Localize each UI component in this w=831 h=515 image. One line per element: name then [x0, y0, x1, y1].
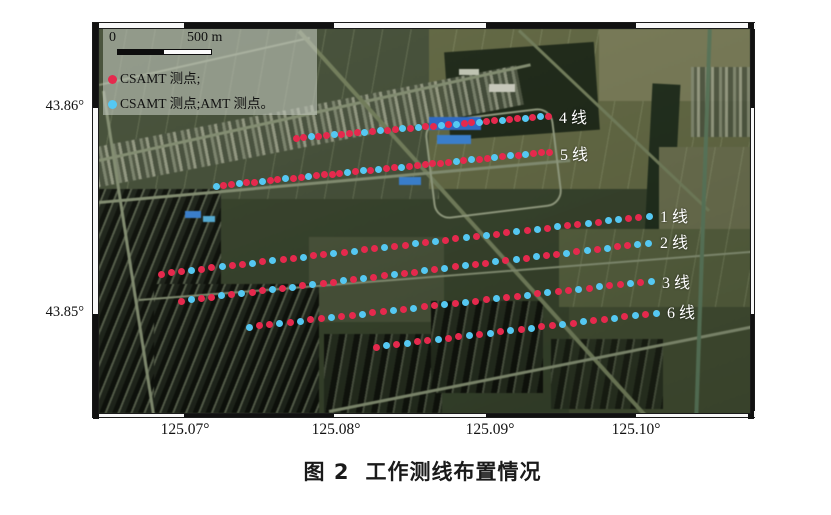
csamt-amt-point — [522, 115, 529, 122]
scalebar-zero: 0 — [109, 30, 116, 46]
csamt-amt-point — [328, 314, 335, 321]
x-axis-tick-label: 125.09° — [455, 421, 525, 439]
csamt-amt-point — [219, 263, 226, 270]
csamt-amt-point — [300, 254, 307, 261]
csamt-amt-point — [537, 113, 544, 120]
csamt-point — [546, 149, 553, 156]
csamt-point — [287, 319, 294, 326]
legend-item-csamt: CSAMT 测点; — [108, 67, 200, 81]
csamt-point — [570, 320, 577, 327]
csamt-amt-point — [653, 310, 660, 317]
csamt-amt-point — [412, 240, 419, 247]
csamt-amt-point — [404, 340, 411, 347]
csamt-amt-point — [462, 299, 469, 306]
csamt-point — [445, 335, 452, 342]
csamt-point — [300, 134, 307, 141]
csamt-point — [543, 252, 550, 259]
csamt-point — [198, 295, 205, 302]
csamt-point — [407, 125, 414, 132]
csamt-amt-point — [331, 131, 338, 138]
csamt-point — [346, 130, 353, 137]
csamt-point — [402, 242, 409, 249]
csamt-point — [406, 163, 413, 170]
csamt-point — [461, 120, 468, 127]
csamt-amt-point — [246, 324, 253, 331]
csamt-point — [476, 156, 483, 163]
csamt-amt-point — [453, 121, 460, 128]
csamt-point — [391, 164, 398, 171]
csamt-point — [279, 285, 286, 292]
survey-line-label: 4 线 — [559, 104, 587, 128]
csamt-point — [341, 249, 348, 256]
csamt-amt-point — [584, 247, 591, 254]
csamt-amt-point — [360, 275, 367, 282]
csamt-point — [354, 129, 361, 136]
csamt-amt-point — [269, 286, 276, 293]
csamt-amt-point — [432, 238, 439, 245]
csamt-amt-point — [381, 244, 388, 251]
csamt-point — [158, 271, 165, 278]
csamt-amt-point — [611, 315, 618, 322]
csamt-amt-point — [499, 117, 506, 124]
csamt-point — [472, 298, 479, 305]
csamt-point — [472, 261, 479, 268]
csamt-point — [514, 293, 521, 300]
csamt-amt-point — [604, 245, 611, 252]
csamt-point — [442, 237, 449, 244]
csamt-amt-point — [534, 226, 541, 233]
csamt-point — [338, 131, 345, 138]
csamt-amt-point — [463, 234, 470, 241]
csamt-point — [329, 171, 336, 178]
survey-line-label: 5 线 — [560, 141, 588, 165]
csamt-amt-point — [188, 296, 195, 303]
csamt-point — [220, 182, 227, 189]
survey-line-label: 2 线 — [660, 229, 688, 253]
map-frame: 4 线5 线1 线2 线3 线6 线 0 500 m CSAMT 测点; CSA… — [92, 22, 755, 418]
csamt-amt-point — [188, 267, 195, 274]
csamt-point — [595, 219, 602, 226]
csamt-amt-point — [359, 311, 366, 318]
csamt-amt-point — [391, 271, 398, 278]
csamt-point — [267, 177, 274, 184]
legend-item-csamt-amt: CSAMT 测点;AMT 测点。 — [108, 92, 274, 106]
csamt-amt-point — [559, 321, 566, 328]
csamt-point — [544, 225, 551, 232]
csamt-point-icon — [108, 75, 117, 84]
csamt-point — [239, 261, 246, 268]
csamt-point — [518, 326, 525, 333]
scalebar-white-segment — [163, 49, 212, 55]
csamt-amt-point — [297, 318, 304, 325]
csamt-point — [369, 128, 376, 135]
csamt-amt-point — [632, 312, 639, 319]
csamt-point — [208, 294, 215, 301]
csamt-point — [445, 159, 452, 166]
csamt-point — [392, 126, 399, 133]
csamt-point — [473, 233, 480, 240]
caption-title: 工作测线布置情况 — [365, 460, 541, 484]
csamt-point — [538, 149, 545, 156]
csamt-amt-point — [453, 158, 460, 165]
csamt-point — [400, 306, 407, 313]
csamt-point — [601, 316, 608, 323]
csamt-amt-point — [476, 119, 483, 126]
csamt-amt-point — [249, 260, 256, 267]
csamt-point — [320, 280, 327, 287]
csamt-point — [555, 288, 562, 295]
csamt-point — [617, 281, 624, 288]
csamt-point — [422, 239, 429, 246]
csamt-amt-point — [645, 240, 652, 247]
csamt-amt-point — [213, 183, 220, 190]
csamt-amt-point — [563, 250, 570, 257]
csamt-point — [383, 165, 390, 172]
csamt-amt-point — [487, 330, 494, 337]
csamt-point — [586, 285, 593, 292]
x-axis-tick-label: 125.07° — [150, 421, 220, 439]
survey-line-label: 1 线 — [660, 203, 688, 227]
csamt-point — [529, 114, 536, 121]
csamt-point — [482, 260, 489, 267]
csamt-amt-point — [627, 280, 634, 287]
csamt-point — [549, 322, 556, 329]
csamt-amt-point — [390, 307, 397, 314]
csamt-amt-point — [259, 178, 266, 185]
csamt-amt-point-icon — [108, 100, 117, 109]
csamt-amt-point — [466, 332, 473, 339]
csamt-amt-point — [483, 232, 490, 239]
x-axis-tick-label: 125.10° — [601, 421, 671, 439]
csamt-point — [168, 269, 175, 276]
legend-item-label: CSAMT 测点; — [120, 71, 200, 86]
csamt-amt-point — [236, 180, 243, 187]
csamt-point — [323, 132, 330, 139]
survey-line-label: 6 线 — [667, 299, 695, 323]
csamt-point — [384, 127, 391, 134]
csamt-point — [198, 266, 205, 273]
csamt-amt-point — [361, 129, 368, 136]
csamt-point — [524, 227, 531, 234]
csamt-point — [625, 215, 632, 222]
csamt-point — [178, 298, 185, 305]
csamt-point — [290, 175, 297, 182]
csamt-point — [251, 179, 258, 186]
csamt-point — [437, 160, 444, 167]
csamt-point — [381, 272, 388, 279]
y-axis-tick-label: 43.86° — [28, 98, 84, 115]
csamt-point — [545, 113, 552, 120]
survey-line-label: 3 线 — [662, 269, 690, 293]
csamt-amt-point — [351, 248, 358, 255]
csamt-point — [493, 231, 500, 238]
csamt-point — [523, 255, 530, 262]
csamt-point — [228, 181, 235, 188]
csamt-point — [290, 255, 297, 262]
csamt-point — [293, 135, 300, 142]
csamt-point — [380, 308, 387, 315]
csamt-amt-point — [289, 284, 296, 291]
csamt-point — [315, 133, 322, 140]
satellite-image: 4 线5 线1 线2 线3 线6 线 0 500 m CSAMT 测点; CSA… — [99, 29, 750, 413]
csamt-amt-point — [493, 295, 500, 302]
csamt-point — [391, 243, 398, 250]
csamt-amt-point — [524, 292, 531, 299]
csamt-point — [370, 274, 377, 281]
csamt-point — [229, 262, 236, 269]
caption-number: 图 2 — [304, 460, 350, 484]
csamt-point — [452, 300, 459, 307]
y-axis-tick-label: 43.85° — [28, 304, 84, 321]
csamt-point — [298, 174, 305, 181]
scalebar-label: 500 m — [187, 30, 222, 46]
csamt-point — [515, 152, 522, 159]
csamt-point — [318, 315, 325, 322]
csamt-amt-point — [398, 164, 405, 171]
figure-page: 4 线5 线1 线2 线3 线6 线 0 500 m CSAMT 测点; CSA… — [0, 0, 831, 515]
csamt-amt-point — [648, 278, 655, 285]
csamt-point — [565, 287, 572, 294]
map-legend: 0 500 m CSAMT 测点; CSAMT 测点;AMT 测点。 — [103, 29, 317, 115]
csamt-amt-point — [462, 262, 469, 269]
csamt-point — [249, 289, 256, 296]
csamt-amt-point — [513, 256, 520, 263]
csamt-amt-point — [308, 133, 315, 140]
csamt-point — [642, 311, 649, 318]
csamt-point — [422, 161, 429, 168]
csamt-point — [411, 269, 418, 276]
csamt-amt-point — [377, 127, 384, 134]
csamt-point — [483, 296, 490, 303]
csamt-amt-point — [435, 336, 442, 343]
csamt-point — [553, 251, 560, 258]
csamt-point — [594, 246, 601, 253]
csamt-amt-point — [528, 325, 535, 332]
csamt-point — [637, 279, 644, 286]
csamt-amt-point — [415, 124, 422, 131]
csamt-point — [484, 155, 491, 162]
csamt-point — [178, 268, 185, 275]
csamt-amt-point — [438, 122, 445, 129]
csamt-point — [373, 344, 380, 351]
csamt-point — [635, 214, 642, 221]
csamt-amt-point — [375, 166, 382, 173]
csamt-point — [330, 279, 337, 286]
csamt-point — [349, 312, 356, 319]
legend-item-label: CSAMT 测点;AMT 测点。 — [120, 96, 274, 111]
scalebar-black-segment — [117, 49, 163, 55]
csamt-point — [280, 256, 287, 263]
csamt-point — [414, 162, 421, 169]
csamt-amt-point — [585, 220, 592, 227]
csamt-point — [430, 123, 437, 130]
figure-caption: 图 2工作测线布置情况 — [0, 456, 831, 486]
csamt-point — [401, 270, 408, 277]
x-axis-tick-label: 125.08° — [301, 421, 371, 439]
csamt-amt-point — [646, 213, 653, 220]
